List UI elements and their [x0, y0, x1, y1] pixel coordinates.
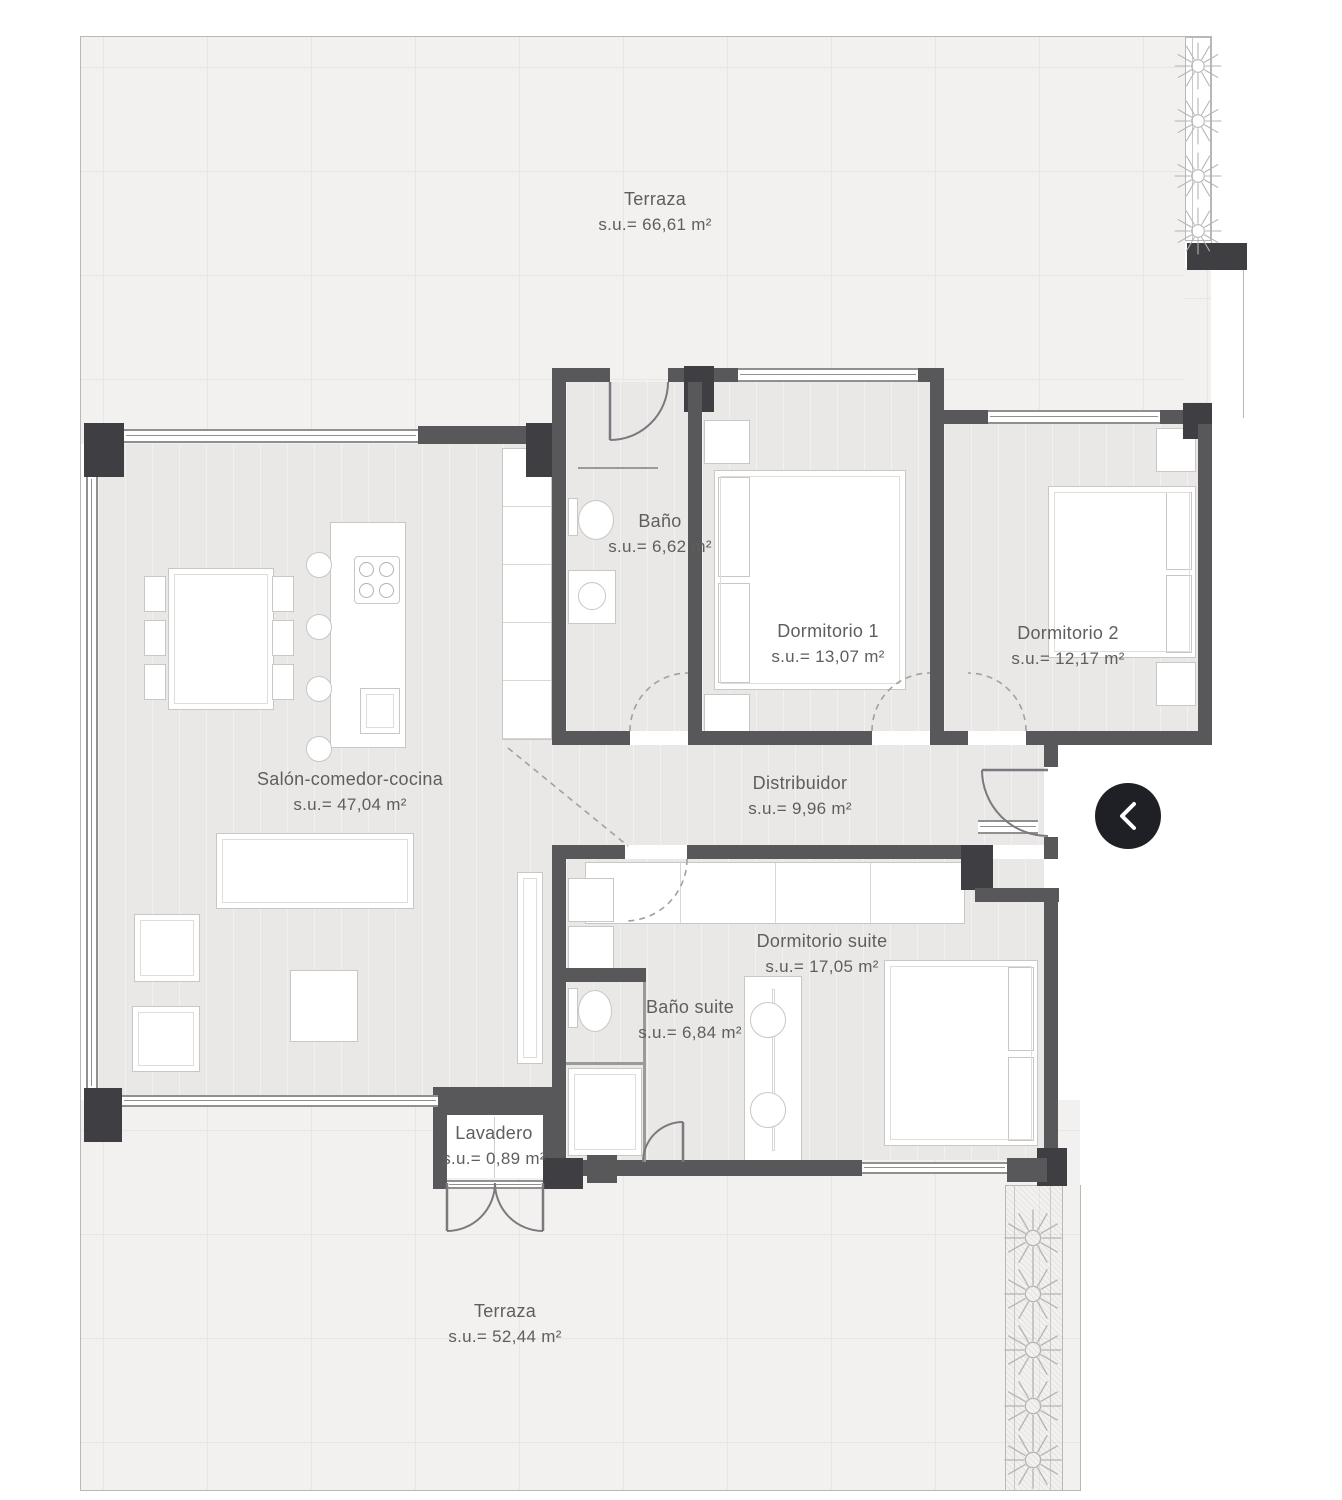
nightstand [704, 420, 750, 464]
floor-plan: Terraza s.u.= 66,61 m² Baño s.u.= 6,62 m… [0, 0, 1342, 1500]
wall-segment [552, 845, 625, 859]
sink-basin [578, 582, 606, 610]
room-label-terraza-bottom: Terraza s.u.= 52,44 m² [448, 1298, 561, 1350]
stool [306, 614, 332, 640]
chair [144, 576, 166, 612]
wall-pillar [84, 423, 124, 477]
room-label-bano: Baño s.u.= 6,62 m² [608, 508, 712, 560]
armchair [132, 1006, 200, 1072]
toilet-tank [568, 988, 578, 1028]
chair [272, 620, 294, 656]
wall-segment [1007, 1158, 1047, 1182]
wall-pillar [961, 845, 993, 890]
room-name: Dormitorio 2 [1011, 620, 1124, 646]
kitchen-counter [502, 448, 552, 740]
vanity-basin [750, 1002, 786, 1038]
wall-pillar [526, 423, 552, 477]
kitchen-sink [360, 688, 400, 734]
wall-segment [1198, 424, 1212, 745]
wall-segment [930, 426, 944, 731]
window [738, 368, 918, 382]
room-name: Salón-comedor-cocina [257, 766, 443, 792]
laundry-door-threshold [447, 1180, 543, 1189]
room-area: s.u.= 13,07 m² [771, 644, 884, 670]
stool [306, 736, 332, 762]
wall-pillar [84, 1088, 122, 1142]
washer [568, 878, 614, 922]
stool [306, 552, 332, 578]
armchair [134, 914, 200, 982]
wall-segment [714, 368, 738, 382]
vanity-basin [750, 1092, 786, 1128]
room-label-dormitorio-suite: Dormitorio suite s.u.= 17,05 m² [757, 928, 888, 980]
room-label-terraza-top: Terraza s.u.= 66,61 m² [598, 186, 711, 238]
wall-segment [566, 968, 646, 982]
wall-segment [688, 731, 872, 745]
room-name: Distribuidor [748, 770, 852, 796]
tv-sideboard [517, 872, 543, 1064]
room-label-lavadero: Lavadero s.u.= 0,89 m² [442, 1120, 546, 1172]
room-area: s.u.= 0,89 m² [442, 1146, 546, 1172]
boundary-line [1211, 36, 1212, 270]
chair [144, 664, 166, 700]
wall-segment [1187, 243, 1247, 270]
wall-segment [1026, 731, 1212, 745]
room-area: s.u.= 6,84 m² [638, 1020, 742, 1046]
chair [272, 576, 294, 612]
room-area: s.u.= 47,04 m² [257, 792, 443, 818]
room-label-dormitorio-2: Dormitorio 2 s.u.= 12,17 m² [1011, 620, 1124, 672]
terrace-top-floor [1185, 268, 1211, 424]
coffee-table [290, 970, 358, 1042]
wall-segment [1044, 837, 1058, 859]
room-area: s.u.= 17,05 m² [757, 954, 888, 980]
window-sliding [86, 477, 98, 1088]
wall-segment [944, 410, 988, 424]
wall-segment [687, 845, 963, 859]
window-sliding [122, 1095, 438, 1107]
boundary-line [80, 36, 1212, 37]
room-name: Dormitorio suite [757, 928, 888, 954]
wardrobe [585, 862, 965, 924]
wall-segment [1044, 745, 1058, 767]
boundary-line [80, 36, 81, 1491]
sofa [216, 833, 414, 909]
toilet-tank [568, 498, 578, 536]
wall-segment [930, 368, 944, 426]
wall-segment [930, 731, 968, 745]
dining-table [168, 568, 274, 710]
room-name: Terraza [448, 1298, 561, 1324]
wall-segment [1044, 902, 1058, 1154]
chair [144, 620, 166, 656]
wall-pillar [543, 1158, 583, 1189]
room-area: s.u.= 9,96 m² [748, 796, 852, 822]
window [862, 1162, 1007, 1174]
shower [568, 1068, 642, 1156]
planter-strip [1005, 1185, 1063, 1491]
wall-segment [587, 1155, 617, 1183]
room-area: s.u.= 66,61 m² [598, 212, 711, 238]
window-sliding [124, 429, 418, 443]
carousel-previous-button[interactable] [1095, 783, 1161, 849]
wall-segment [552, 368, 566, 745]
room-area: s.u.= 6,62 m² [608, 534, 712, 560]
stove [354, 556, 400, 604]
nightstand [1156, 662, 1196, 706]
towel-rail [578, 467, 658, 469]
boundary-line [1080, 1185, 1081, 1491]
room-area: s.u.= 12,17 m² [1011, 646, 1124, 672]
wall-segment [975, 888, 1059, 902]
chevron-left-icon [1113, 799, 1143, 833]
wall-segment [438, 1087, 562, 1115]
planter-strip [1185, 37, 1211, 241]
room-name: Lavadero [442, 1120, 546, 1146]
bed [884, 960, 1038, 1146]
room-name: Baño suite [638, 994, 742, 1020]
boundary-line [80, 1490, 1081, 1491]
room-name: Baño [608, 508, 712, 534]
chair [272, 664, 294, 700]
room-label-salon: Salón-comedor-cocina s.u.= 47,04 m² [257, 766, 443, 818]
window [988, 410, 1160, 424]
room-name: Terraza [598, 186, 711, 212]
stool [306, 676, 332, 702]
room-label-bano-suite: Baño suite s.u.= 6,84 m² [638, 994, 742, 1046]
room-label-distribuidor: Distribuidor s.u.= 9,96 m² [748, 770, 852, 822]
room-area: s.u.= 52,44 m² [448, 1324, 561, 1350]
toilet [578, 990, 612, 1032]
partition-line [566, 1062, 644, 1065]
boundary-line [1243, 268, 1244, 418]
room-label-dormitorio-1: Dormitorio 1 s.u.= 13,07 m² [771, 618, 884, 670]
washer [568, 926, 614, 970]
room-name: Dormitorio 1 [771, 618, 884, 644]
entry-sidelight [978, 820, 1038, 834]
